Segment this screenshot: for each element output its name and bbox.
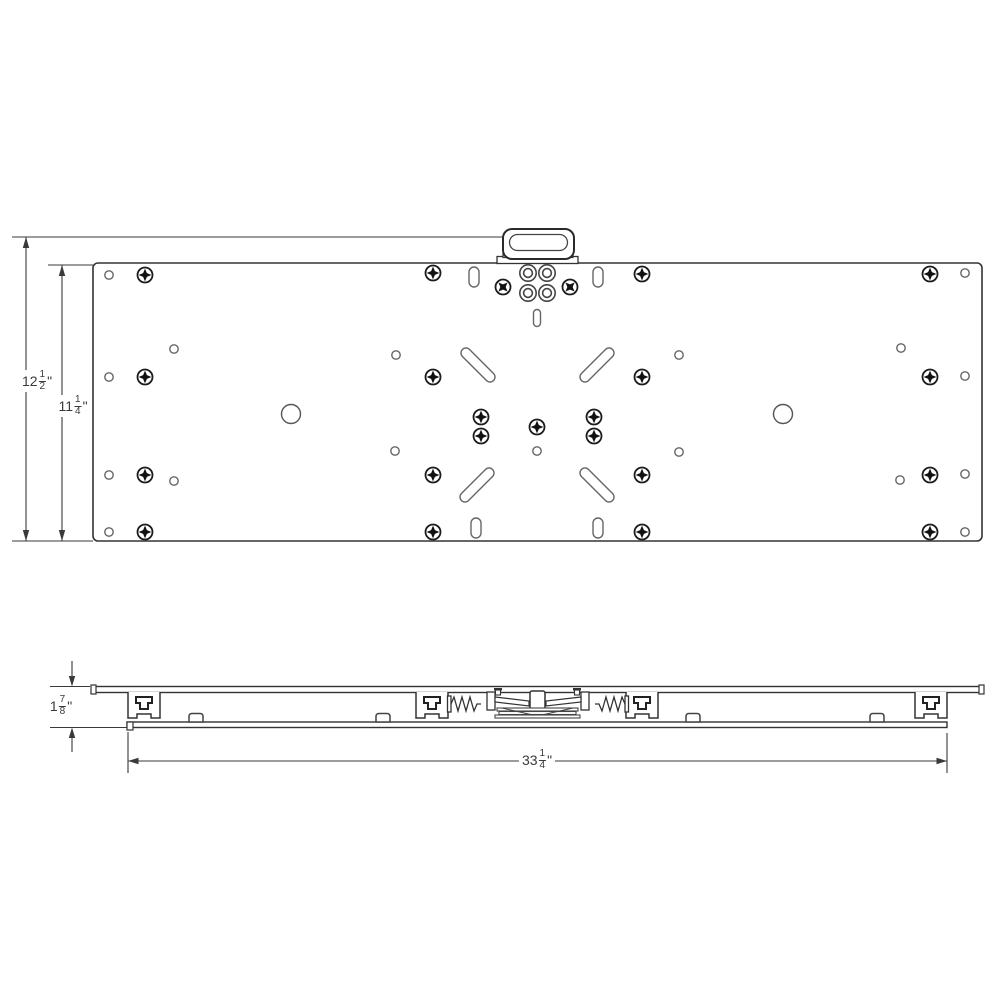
dim-fraction: 14 (539, 749, 547, 771)
dim-whole: 12 (22, 374, 38, 388)
dim-unit: " (47, 374, 52, 388)
dim-whole: 1 (50, 699, 58, 713)
dim-unit: " (67, 699, 72, 713)
side-view (91, 685, 984, 730)
plate-outline (93, 263, 982, 541)
dim-whole: 11 (58, 399, 73, 413)
handle-icon (497, 229, 578, 264)
dimension-overall-width: 3314" (519, 749, 555, 771)
dimension-plate-height: 1114" (55, 395, 90, 417)
top-view (93, 229, 982, 541)
dim-fraction: 12 (39, 370, 47, 392)
dimension-assembly-height: 178" (47, 695, 75, 717)
side-bottom-rail (127, 722, 947, 730)
dim-whole: 33 (522, 753, 538, 767)
dim-fraction: 14 (74, 395, 82, 417)
dim-fraction: 78 (59, 695, 67, 717)
technical-drawing (0, 0, 1000, 1000)
drawing-canvas: 1212" 1114" 178" 3314" (0, 0, 1000, 1000)
dim-unit: " (83, 399, 88, 413)
dim-unit: " (547, 753, 552, 767)
dimension-overall-height: 1212" (19, 370, 55, 392)
